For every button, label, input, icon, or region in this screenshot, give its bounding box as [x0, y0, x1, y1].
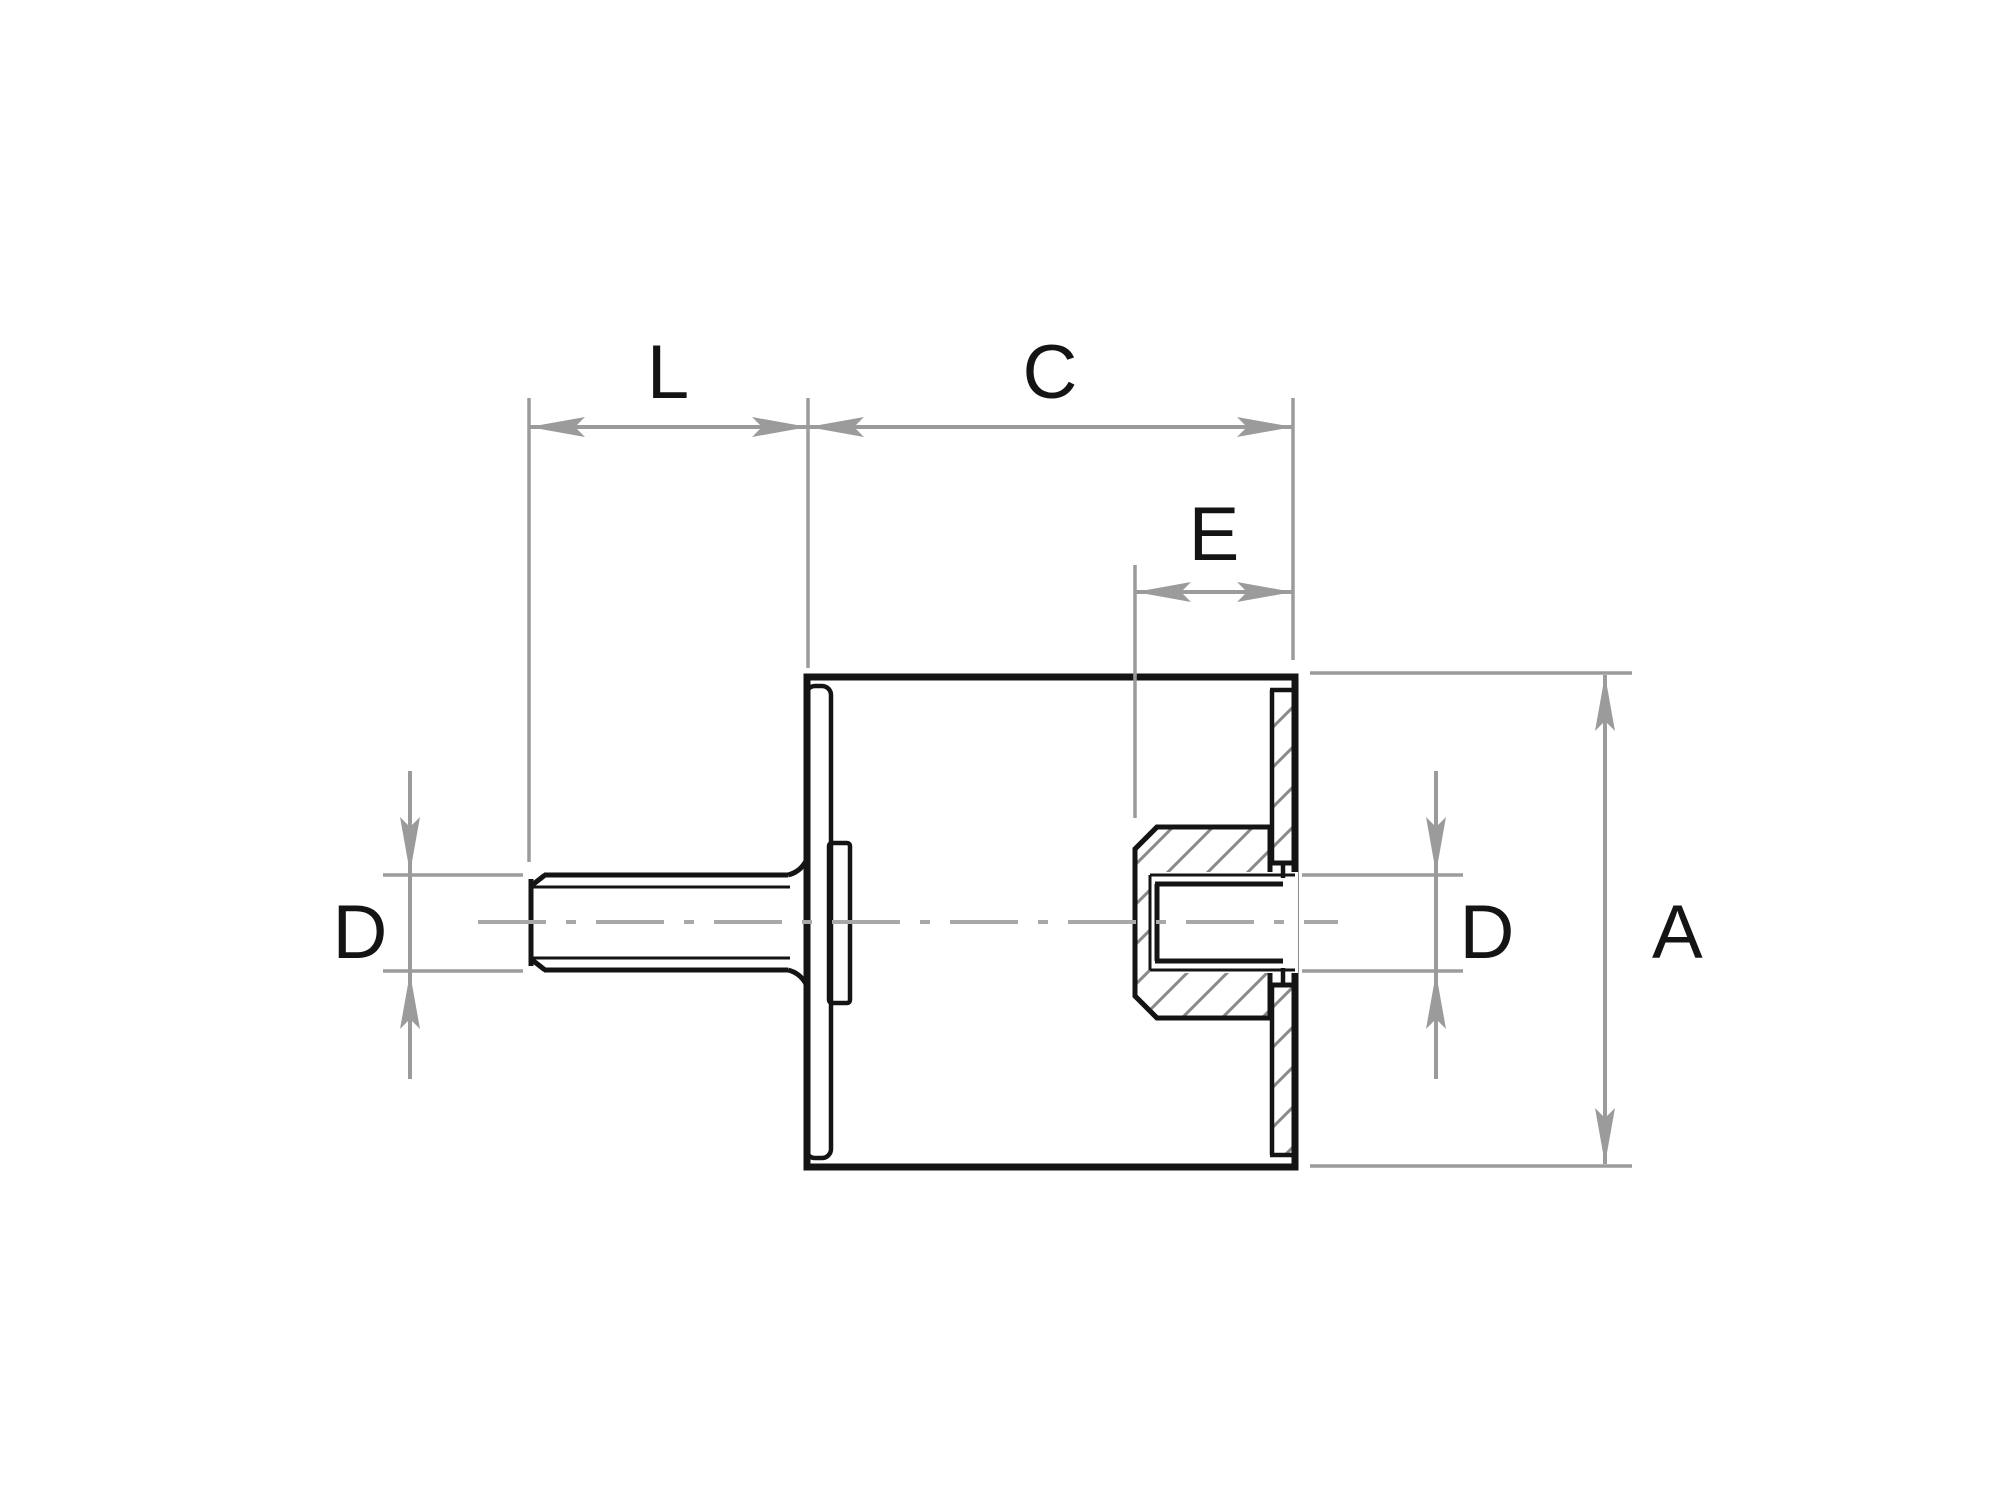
dimension-hole-diameter: D — [1302, 771, 1514, 1079]
label-C: C — [1023, 330, 1078, 415]
stud-fillet-bottom — [788, 970, 806, 984]
label-D-left: D — [333, 890, 388, 975]
drawing-canvas: L C E A D D — [0, 0, 2016, 1512]
dimension-thread-depth: E — [1135, 492, 1293, 818]
stud-fillet-top — [788, 861, 806, 875]
dimension-stud-diameter: D — [333, 771, 523, 1079]
dimension-stud-length: L — [529, 330, 808, 862]
section-drawing: L C E A D D — [0, 0, 2016, 1512]
label-A: A — [1652, 890, 1703, 975]
label-E: E — [1189, 492, 1240, 577]
label-D-right: D — [1460, 890, 1515, 975]
label-L: L — [647, 330, 689, 415]
